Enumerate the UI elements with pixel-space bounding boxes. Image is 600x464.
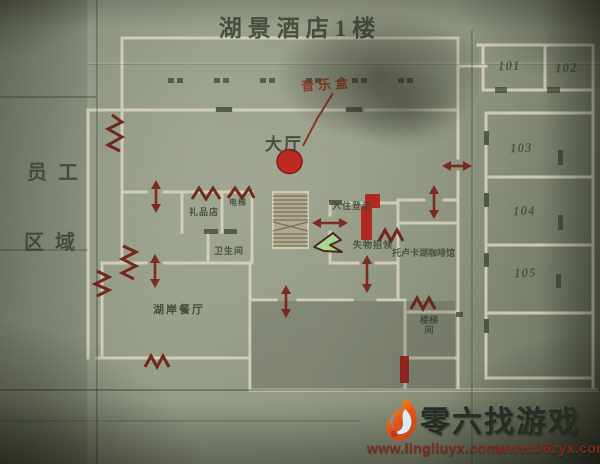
label-stairwell-line2: 间 — [424, 325, 433, 335]
double-arrow-icon — [150, 254, 160, 288]
double-arrow-icon — [429, 185, 439, 219]
game-map-screenshot: 湖景酒店1楼 音乐盒 大厅 员工 区域 礼品店 电梯 卫生间 湖岸餐厅 入住登记… — [0, 0, 600, 464]
label-restroom: 卫生间 — [214, 244, 244, 257]
zigzag-icon — [108, 115, 122, 151]
room-number-102: 102 — [555, 60, 578, 77]
passable-door-arrow-icons — [150, 161, 472, 318]
label-elevator: 电梯 — [229, 197, 247, 208]
map-title: 湖景酒店1楼 — [219, 9, 382, 43]
double-arrow-icon — [151, 180, 161, 213]
music-box-annotation: 音乐盒 — [300, 72, 352, 95]
watermark-url-left: www.lingliuyx.com — [367, 440, 499, 456]
watermark-flame-logo-icon — [385, 397, 419, 443]
lobby-stairs — [273, 192, 308, 248]
label-gift-shop: 礼品店 — [189, 205, 219, 218]
label-lakeshore-restaurant: 湖岸餐厅 — [153, 301, 205, 317]
label-stairwell: 楼梯 间 — [415, 315, 443, 335]
corridor-red-mark — [400, 356, 409, 383]
label-stairwell-line1: 楼梯 — [420, 315, 438, 325]
label-lobby: 大厅 — [265, 130, 303, 155]
room-number-103: 103 — [510, 140, 533, 157]
label-staff-area-1: 员工 — [27, 156, 89, 185]
watermark-site-name: 零六找游戏 — [420, 397, 580, 441]
label-toluca-cafe: 托卢卡湖咖啡馆 — [392, 246, 455, 259]
double-arrow-icon — [312, 218, 348, 228]
room-number-105: 105 — [514, 265, 537, 282]
label-staff-area-2: 区域 — [24, 226, 86, 255]
room-number-104: 104 — [513, 203, 536, 220]
door-marks — [204, 87, 563, 333]
window-marks — [168, 78, 413, 83]
label-lost-and-found: 失物招领 — [353, 238, 393, 251]
label-check-in: 入住登记 — [332, 199, 372, 212]
double-arrow-icon — [442, 161, 472, 171]
room-number-101: 101 — [498, 58, 521, 75]
player-arrow-marker — [314, 233, 342, 252]
watermark-url-right: www.06zyx.com — [497, 440, 600, 456]
double-arrow-icon — [362, 255, 372, 293]
